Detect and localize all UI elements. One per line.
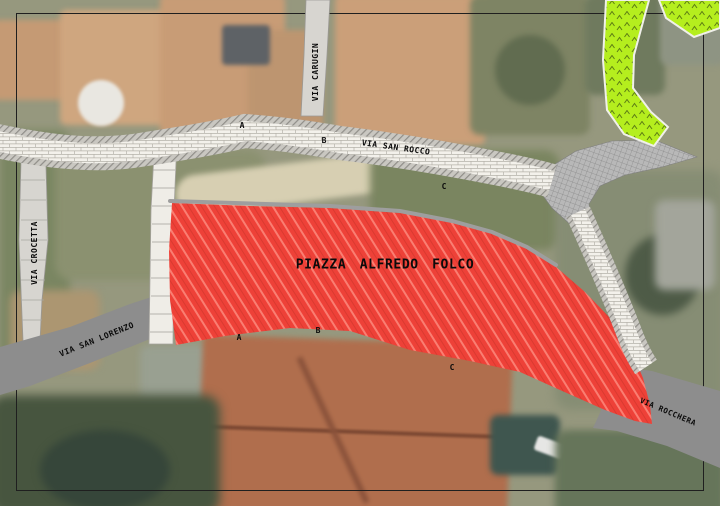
piazza-label: PIAZZA ALFREDO FOLCO bbox=[296, 259, 475, 272]
section-marker-bottom-b: B bbox=[316, 327, 321, 335]
junction-paved-area bbox=[536, 140, 697, 228]
plan-overlay bbox=[0, 0, 720, 506]
street-label-via-crocetta: VIA CROCETTA bbox=[31, 221, 39, 285]
section-marker-top-b: B bbox=[322, 137, 327, 145]
green-area-corner bbox=[659, 0, 720, 37]
site-plan-map: VIA CARUGIN VIA SAN ROCCO VIA CROCETTA V… bbox=[0, 0, 720, 506]
section-marker-bottom-a: A bbox=[237, 334, 242, 342]
section-marker-top-c: C bbox=[442, 183, 447, 191]
section-marker-top-a: A bbox=[240, 122, 245, 130]
green-area-upper bbox=[603, 0, 668, 146]
section-marker-bottom-c: C bbox=[450, 364, 455, 372]
street-label-via-carugin: VIA CARUGIN bbox=[312, 43, 320, 101]
